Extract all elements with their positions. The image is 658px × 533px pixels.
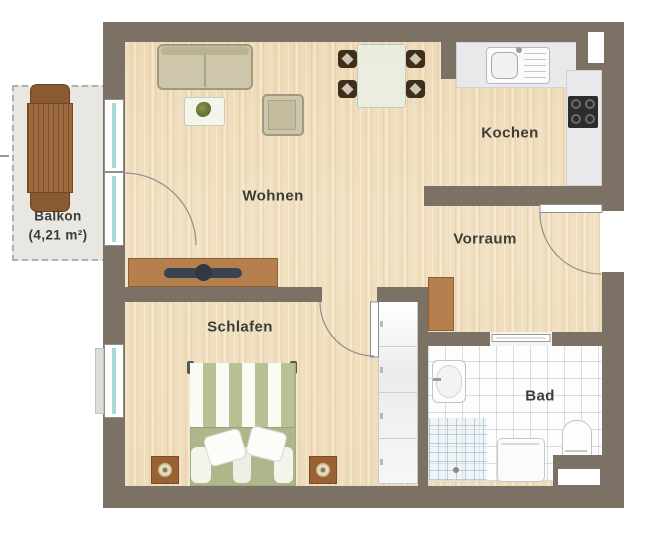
sink-drainboard [524,53,546,78]
toilet-seat-line [565,450,587,452]
balcony-door-glass [112,176,116,242]
entrance-door-opening [600,211,626,272]
stove-burner [571,99,581,109]
wardrobe-divider [379,346,417,347]
room-label-schlafen: Schlafen [207,319,273,336]
toilet-icon [562,420,592,460]
wall-kitchen-stub [441,42,456,79]
wall-bedroom-top-left [103,287,322,302]
room-label-bad: Bad [525,388,555,405]
wall-mid-vertical [418,287,428,486]
balcony-area-label: (4,21 m²) [28,228,87,243]
sofa-back [161,47,249,55]
wardrobe-divider [379,392,417,393]
dimension-tick [0,155,9,157]
washing-machine-lid [501,443,539,445]
wardrobe-icon [428,277,454,331]
wall-left [103,22,125,508]
wardrobe-handle [380,413,383,419]
bath-shaft-niche [558,469,600,485]
wall-top [103,22,624,42]
lamp-icon [158,463,172,477]
lamp-icon [316,463,330,477]
sink-faucet [516,47,522,53]
wardrobe-divider [379,438,417,439]
kitchen-counter-right [566,70,602,186]
window-glass [112,103,116,168]
floor-plan: Balkon (4,21 m²) [0,0,658,533]
bed-duvet-striped [190,363,294,428]
dining-table-icon [357,44,406,108]
wardrobe-handle [380,321,383,327]
bath-door-opening [490,332,552,346]
stove-burner [571,114,581,124]
washbasin-bowl [436,365,462,398]
wall-kitchen-bottom [424,186,624,206]
balcony-table-icon [27,103,73,193]
armchair-cushion [268,100,296,130]
stove-burner [585,99,595,109]
shower-drain [453,467,459,473]
sink-basin [491,52,518,79]
tv-base [195,264,212,281]
sofa-seam [204,55,206,87]
wardrobe-handle [380,459,383,465]
room-label-kochen: Kochen [481,125,538,142]
window-glass [112,348,116,414]
room-label-wohnen: Wohnen [242,188,303,205]
room-label-vorraum: Vorraum [453,231,516,248]
kitchen-shaft-niche [588,32,604,63]
room-label-balkon: Balkon [34,209,81,224]
wall-bottom [103,486,624,508]
washbasin-tap [433,378,441,381]
wardrobe-handle [380,367,383,373]
window-sill [95,348,104,414]
stove-burner [585,114,595,124]
